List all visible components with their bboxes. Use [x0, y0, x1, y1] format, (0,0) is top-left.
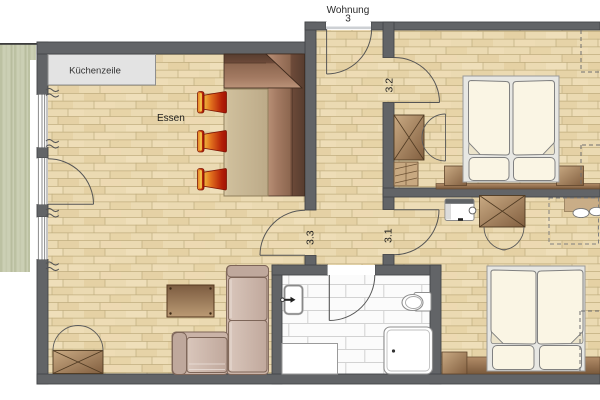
- svg-text:3: 3: [345, 14, 351, 25]
- svg-text:3.3: 3.3: [305, 230, 317, 245]
- svg-text:3.1: 3.1: [383, 228, 395, 243]
- svg-text:Küchenzeile: Küchenzeile: [69, 66, 121, 77]
- svg-text:Essen: Essen: [157, 113, 185, 124]
- svg-text:3.2: 3.2: [384, 78, 396, 93]
